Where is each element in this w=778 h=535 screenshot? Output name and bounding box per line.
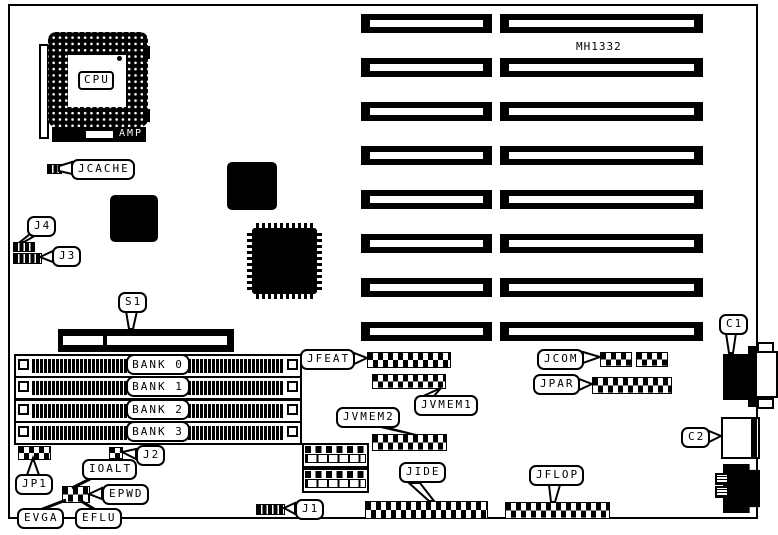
epwd-label: EPWD: [102, 484, 149, 505]
jp1-label: JP1: [15, 474, 53, 495]
c1-label: C1: [719, 314, 748, 335]
bank3-label: BANK 3: [126, 421, 190, 442]
motherboard-diagram: CPU AMP MH1332 BANK 0 BANK 1: [0, 0, 778, 535]
bank1-label: BANK 1: [126, 376, 190, 397]
jfeat-label: JFEAT: [300, 349, 355, 370]
j2-label: J2: [136, 445, 165, 466]
bank0-label: BANK 0: [126, 354, 190, 375]
ioalt-label: IOALT: [82, 459, 137, 480]
jflop-label: JFLOP: [529, 465, 584, 486]
j1-label: J1: [295, 499, 324, 520]
jvmem2-label: JVMEM2: [336, 407, 400, 428]
j4-label: J4: [27, 216, 56, 237]
jvmem1-label: JVMEM1: [414, 395, 478, 416]
jide-label: JIDE: [399, 462, 446, 483]
jpar-label: JPAR: [533, 374, 580, 395]
c2-label: C2: [681, 427, 710, 448]
jcache-label: JCACHE: [71, 159, 135, 180]
evga-label: EVGA: [17, 508, 64, 529]
jcom-label: JCOM: [537, 349, 584, 370]
callout-leaders: [0, 0, 778, 535]
j3-label: J3: [52, 246, 81, 267]
eflu-label: EFLU: [75, 508, 122, 529]
bank2-label: BANK 2: [126, 399, 190, 420]
s1-label: S1: [118, 292, 147, 313]
